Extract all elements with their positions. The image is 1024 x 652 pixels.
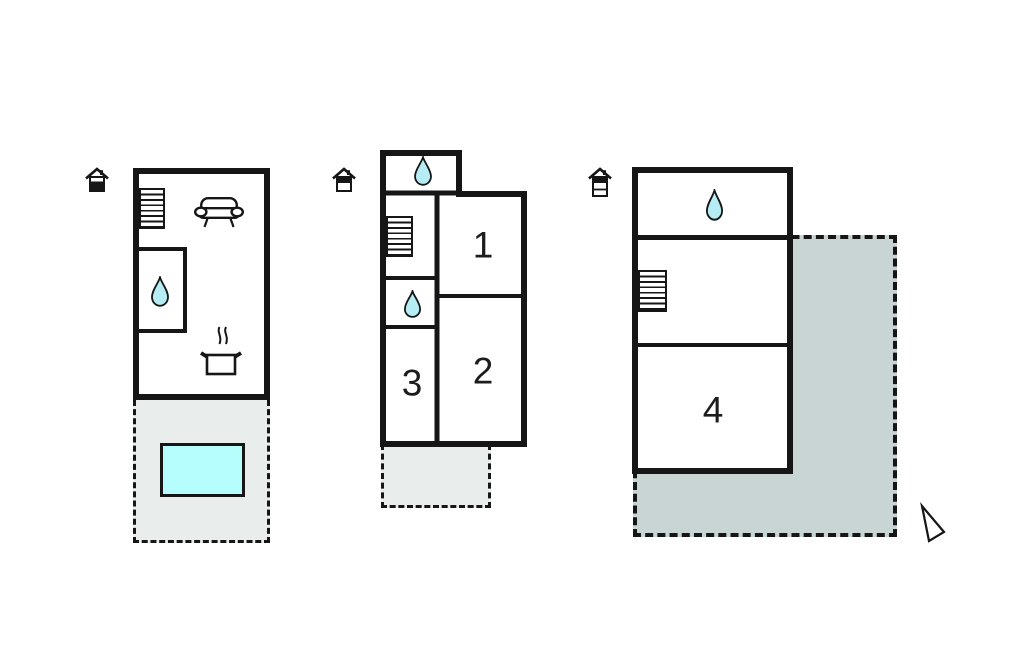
stairs-icon [638, 270, 667, 312]
room-label-2: 2 [473, 353, 494, 390]
wall-divider [638, 235, 787, 240]
swimming-pool [160, 443, 245, 497]
house-level-lower-icon [85, 167, 109, 194]
water-drop-icon [413, 156, 433, 186]
building-middle [377, 147, 530, 451]
north-arrow-icon [913, 500, 949, 546]
room-label-4: 4 [703, 392, 724, 429]
water-drop-icon [705, 189, 724, 221]
floor-plan-canvas: 1 2 3 4 [0, 0, 1024, 652]
room-label-3: 3 [402, 365, 423, 402]
cooking-pot-icon [199, 324, 243, 376]
house-level-top-icon [588, 167, 612, 198]
sofa-icon [194, 196, 244, 230]
wall-divider [638, 343, 787, 347]
house-level-upper-icon [332, 167, 356, 194]
room-label-1: 1 [473, 227, 494, 264]
water-drop-icon [403, 290, 422, 318]
stairs-icon [386, 216, 413, 257]
terrace-middle [381, 444, 491, 508]
water-drop-icon [150, 276, 170, 307]
stairs-icon [139, 188, 165, 229]
